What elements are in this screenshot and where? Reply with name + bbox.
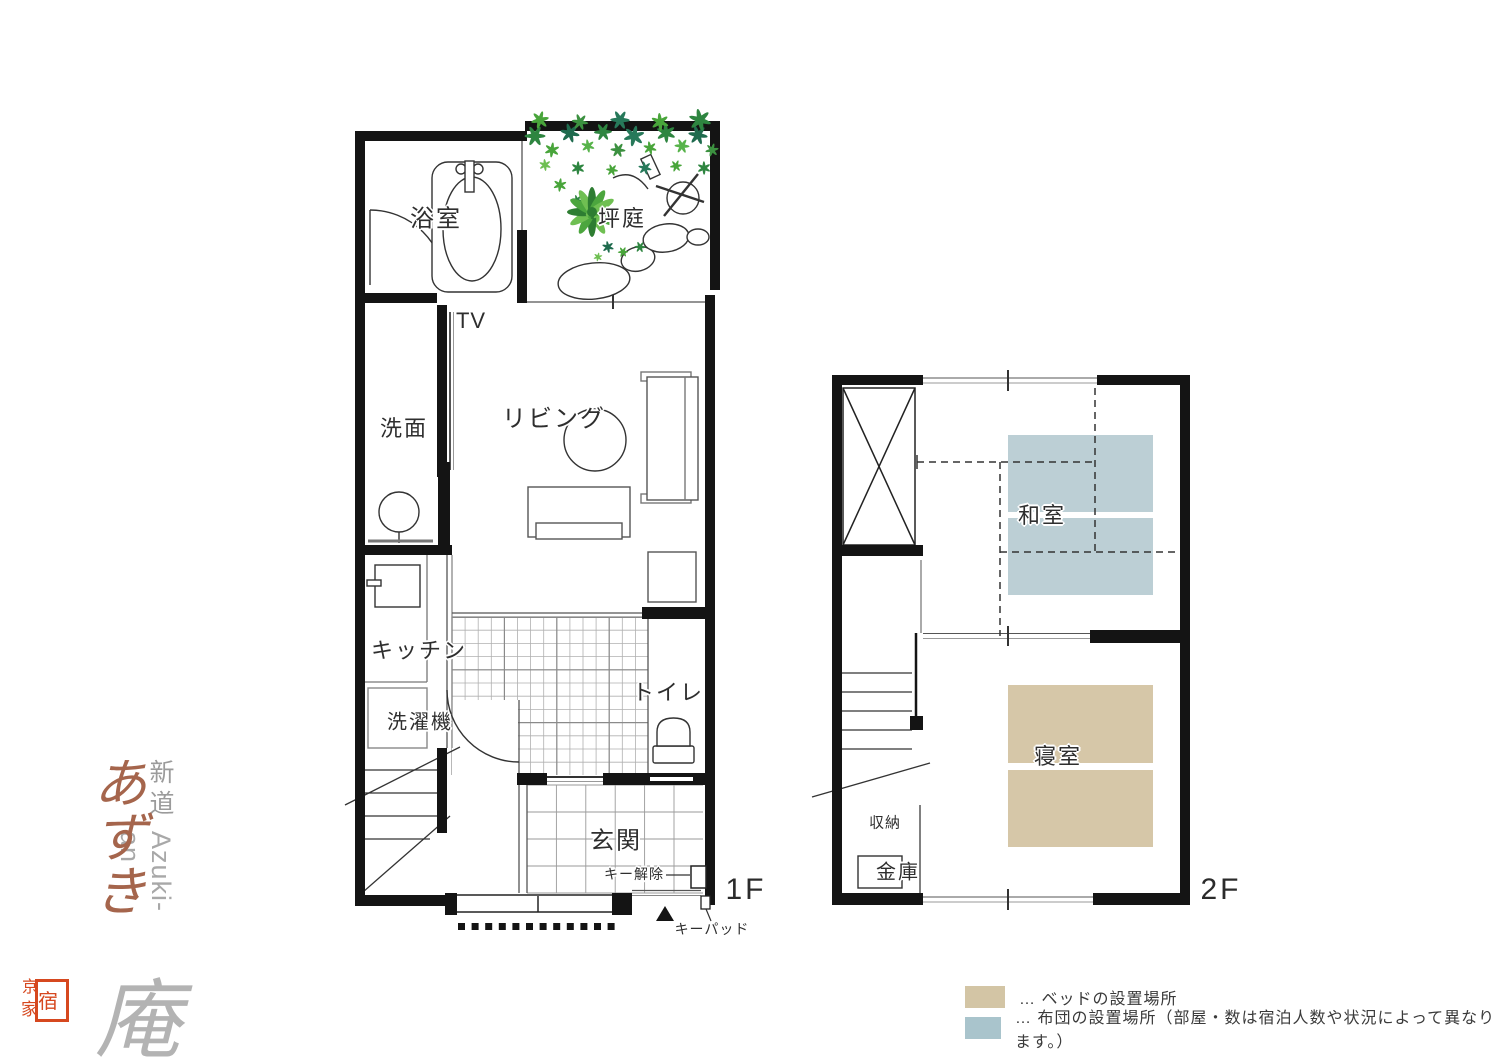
label-bedroom: 寝室 [1034, 739, 1082, 771]
maple-leaf-icon [542, 140, 563, 161]
maple-leaf-icon [668, 158, 685, 175]
futon-swatch-icon [965, 1017, 1001, 1039]
wall-segment [1180, 375, 1190, 905]
keypad-device-icon [701, 896, 710, 909]
seal-char-inside: 宿 [38, 985, 58, 1014]
wall-segment [910, 716, 923, 730]
wall-segment [517, 230, 527, 303]
label-safe: 金庫 [876, 856, 920, 885]
maple-leaf-icon [539, 158, 552, 171]
wall-segment [355, 895, 455, 906]
maple-leaf-icon [600, 239, 615, 254]
maple-leaf-icon [569, 159, 587, 177]
maple-leaf-icon [697, 161, 710, 175]
label-key-release: キー解除 [604, 864, 664, 884]
side-table-icon [648, 552, 696, 602]
brand-name-suffix: 庵 [95, 950, 181, 1060]
maple-leaf-icon [551, 176, 570, 195]
plan-1f [345, 107, 721, 930]
stone [556, 259, 631, 302]
wall-segment [355, 131, 527, 141]
wall-segment [832, 375, 842, 905]
wall-segment [832, 893, 923, 905]
legend-futon-label: … 布団の設置場所（部屋・数は宿泊人数や状況によって異なります。） [1015, 1004, 1500, 1052]
label-storage: 収納 [869, 812, 901, 833]
faucet-handle [465, 161, 474, 192]
wall-segment [517, 773, 547, 785]
stone [687, 229, 709, 245]
wall-segment [445, 893, 457, 915]
wall-segment [355, 545, 452, 555]
brand-seal: 宿 京 家 [22, 975, 82, 1027]
fridge-icon [375, 565, 420, 607]
dotted-walkway [458, 923, 615, 930]
maple-leaf-icon [592, 251, 605, 264]
wall-segment [1090, 630, 1180, 643]
legend: … ベッドの設置場所 … 布団の設置場所（部屋・数は宿泊人数や状況によって異なり… [965, 984, 1500, 1046]
sofa-seat [536, 523, 622, 539]
washbasin-icon [379, 492, 419, 532]
label-tv: TV [456, 308, 486, 334]
void-x-box [843, 388, 915, 545]
brand-block: 新道 Azuki-an あずき 庵 宿 京 家 [0, 735, 240, 1060]
legend-item-futon: … 布団の設置場所（部屋・数は宿泊人数や状況によって異なります。） [965, 1015, 1500, 1041]
seal-char-top: 京 [22, 973, 38, 997]
wall-segment [438, 462, 450, 554]
key-release-box [691, 866, 706, 888]
label-washroom: 洗面 [380, 411, 428, 443]
wall-segment [832, 375, 923, 385]
label-keypad: キーパッド [675, 919, 750, 939]
wall-segment [710, 121, 720, 290]
door-slit [650, 777, 693, 781]
seal-char-bottom: 家 [21, 995, 38, 1020]
wall-segment [362, 293, 437, 303]
floor-plan-page: 浴室 坪庭 TV 洗面 リビング キッチン 洗濯機 トイレ 玄関 キー解除 キー… [0, 0, 1500, 1060]
entrance-arrow-icon [656, 906, 674, 921]
maple-leaf-icon [610, 142, 626, 158]
wall-segment [437, 748, 447, 833]
stairs-2f [812, 673, 930, 797]
maple-leaf-icon [642, 140, 658, 156]
wall-segment [832, 545, 923, 556]
label-garden: 坪庭 [598, 201, 646, 233]
brand-name-main: あずき [82, 755, 147, 917]
wall-segment [1097, 375, 1190, 385]
label-kitchen: キッチン [371, 633, 467, 665]
wall-segment [355, 131, 365, 905]
toilet-bowl-icon [657, 718, 690, 746]
wall-segment [642, 607, 715, 619]
maple-leaf-icon [672, 136, 692, 156]
floor2-tag: 2F [1200, 873, 1241, 907]
bed-swatch-icon [965, 986, 1005, 1008]
wall-segment [437, 305, 447, 477]
toilet-tank [653, 746, 694, 763]
label-living: リビング [502, 399, 606, 434]
maple-leaf-icon [579, 137, 596, 154]
fridge-handle [367, 580, 381, 586]
floor1-tag: 1F [725, 873, 766, 907]
wall-segment [1093, 893, 1190, 905]
stone-edge [613, 175, 648, 189]
label-bath: 浴室 [410, 199, 462, 234]
label-entrance: 玄関 [590, 821, 642, 856]
wall-segment [612, 893, 632, 915]
label-japanese-room: 和室 [1018, 498, 1066, 530]
side-sofa-icon [647, 377, 698, 500]
wall-segment [705, 295, 715, 905]
bed-area [1008, 770, 1153, 847]
label-washer: 洗濯機 [387, 706, 453, 735]
label-toilet: トイレ [632, 675, 704, 707]
